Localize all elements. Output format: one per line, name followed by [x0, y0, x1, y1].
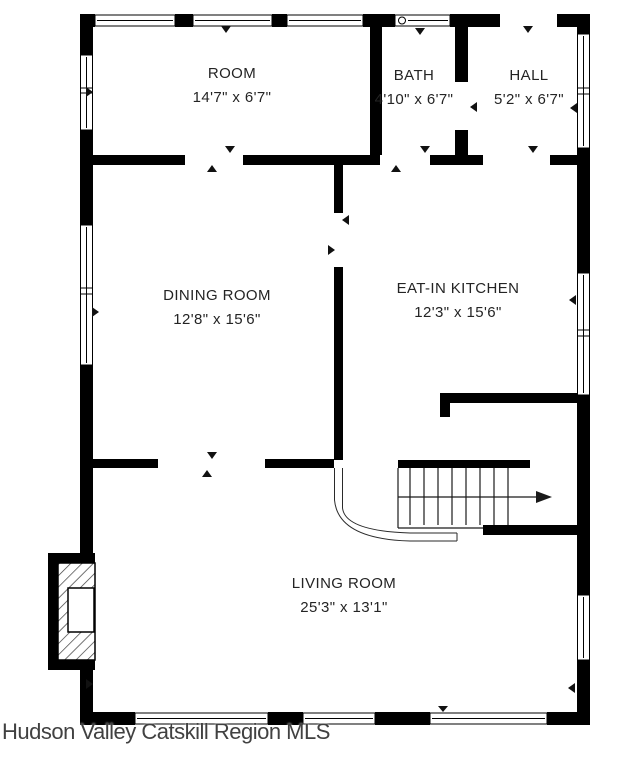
room-label-dining-room: DINING ROOM 12'8" x 15'6" — [163, 284, 271, 332]
room-dimensions: 14'7" x 6'7" — [193, 86, 272, 110]
room-dimensions: 25'3" x 13'1" — [292, 596, 396, 620]
marker-bottom-window — [438, 706, 448, 712]
marker-right-window-2 — [569, 295, 576, 305]
floorplan-drawing — [0, 0, 644, 768]
marker-bath-window — [415, 28, 425, 35]
marker-left-window-2 — [92, 307, 99, 317]
marker-bath-door-b — [391, 165, 401, 172]
staircase — [398, 468, 552, 528]
room-label-eat-in-kitchen: EAT-IN KITCHEN 12'3" x 15'6" — [397, 277, 520, 325]
marker-top-window — [221, 26, 231, 33]
room-name: DINING ROOM — [163, 284, 271, 308]
room-name: EAT-IN KITCHEN — [397, 277, 520, 301]
marker-kitchen-door-b — [328, 245, 335, 255]
stair-direction-arrow — [536, 491, 552, 503]
room-name: HALL — [494, 64, 564, 88]
room-dimensions: 12'3" x 15'6" — [397, 301, 520, 325]
room-dimensions: 4'10" x 6'7" — [375, 88, 454, 112]
marker-right-wall-low — [568, 683, 575, 693]
room-dimensions: 12'8" x 15'6" — [163, 308, 271, 332]
marker-room-door-b — [207, 165, 217, 172]
arched-opening — [335, 468, 458, 541]
room-name: ROOM — [193, 62, 272, 86]
room-label-hall: HALL 5'2" x 6'7" — [494, 64, 564, 112]
marker-right-window-1 — [570, 103, 577, 113]
mls-credit-text: Hudson Valley Catskill Region MLS — [2, 719, 330, 745]
room-name: BATH — [375, 64, 454, 88]
marker-kitchen-door-a — [342, 215, 349, 225]
fireplace — [58, 563, 95, 660]
marker-room-door-a — [225, 146, 235, 153]
room-dimensions: 5'2" x 6'7" — [494, 88, 564, 112]
marker-bath-door-a — [420, 146, 430, 153]
floorplan-page: ROOM 14'7" x 6'7" BATH 4'10" x 6'7" HALL… — [0, 0, 644, 768]
marker-living-opening-b — [202, 470, 212, 477]
room-label-room: ROOM 14'7" x 6'7" — [193, 62, 272, 110]
marker-living-opening-a — [207, 452, 217, 459]
marker-hall-opening — [528, 146, 538, 153]
room-label-bath: BATH 4'10" x 6'7" — [375, 64, 454, 112]
room-label-living-room: LIVING ROOM 25'3" x 13'1" — [292, 572, 396, 620]
marker-hall-top — [523, 26, 533, 33]
room-name: LIVING ROOM — [292, 572, 396, 596]
marker-bathhall-door — [470, 102, 477, 112]
